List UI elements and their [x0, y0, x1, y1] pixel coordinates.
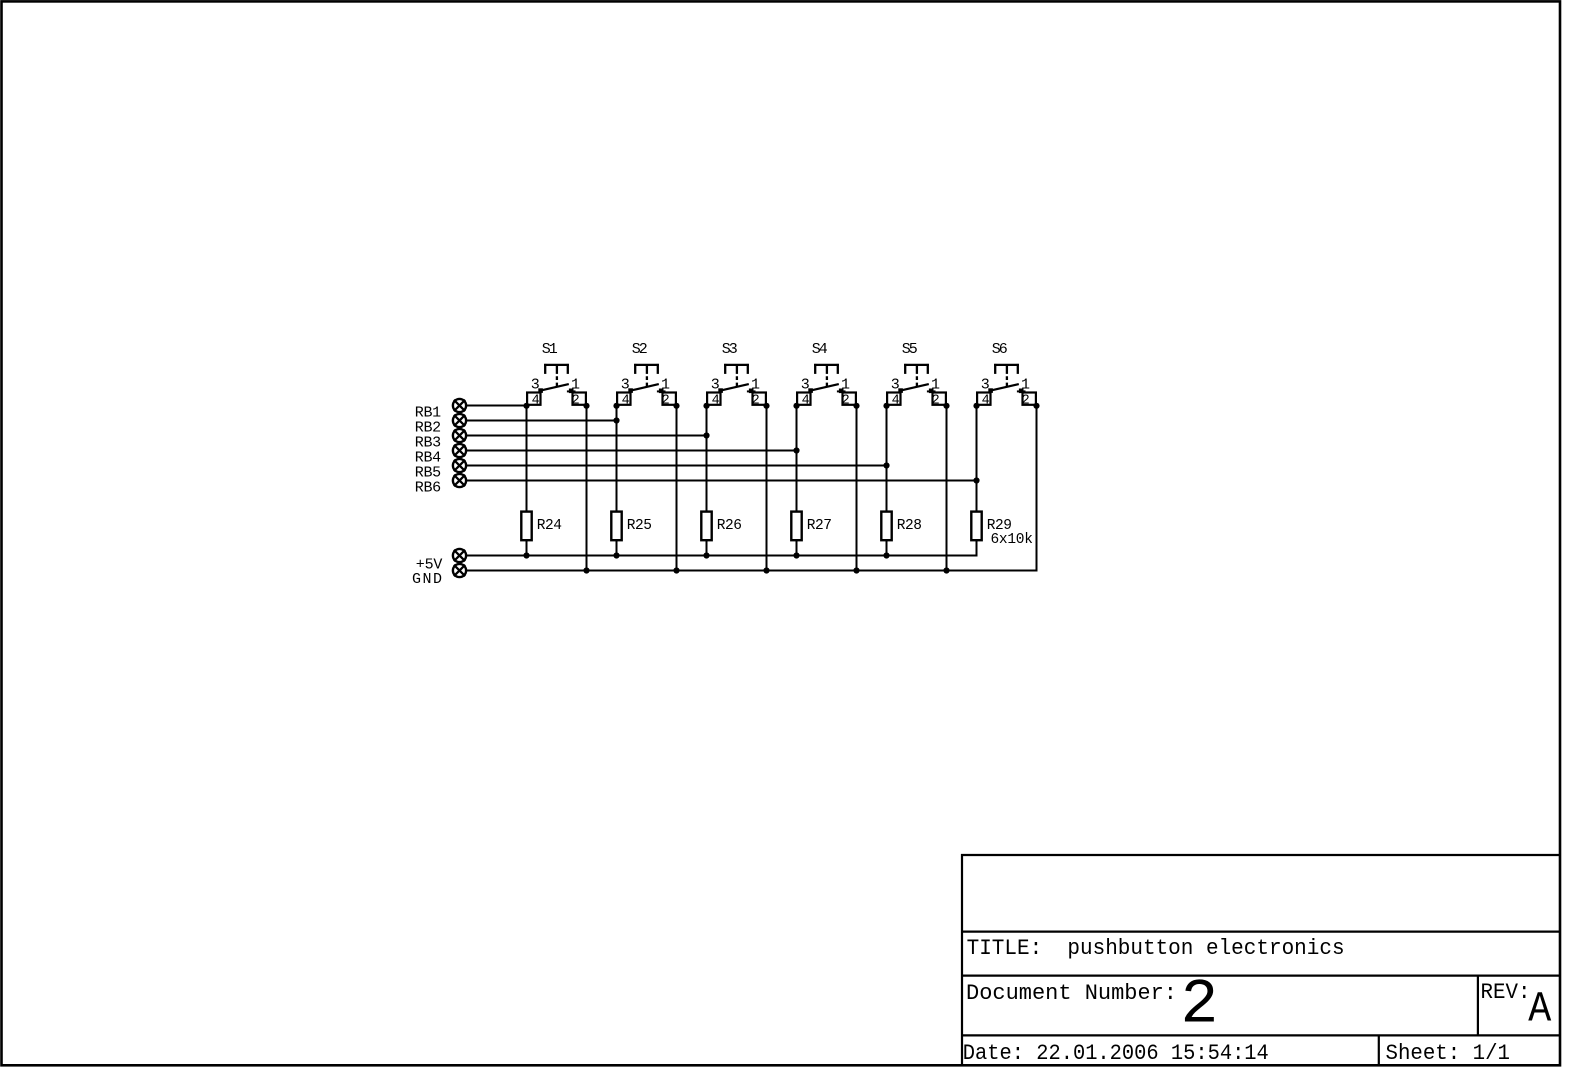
- svg-text:2: 2: [662, 393, 670, 408]
- svg-text:R28: R28: [897, 518, 922, 534]
- svg-text:S5: S5: [902, 341, 918, 358]
- svg-text:S1: S1: [542, 341, 558, 358]
- svg-text:4: 4: [532, 393, 540, 408]
- svg-text:R27: R27: [807, 518, 832, 534]
- svg-text:REV:: REV:: [1481, 980, 1531, 1005]
- svg-text:S4: S4: [812, 341, 828, 358]
- svg-text:R25: R25: [627, 518, 652, 534]
- svg-text:4: 4: [982, 393, 990, 408]
- svg-text:6x10k: 6x10k: [991, 532, 1033, 548]
- svg-text:Date: 22.01.2006 15:54:14: Date: 22.01.2006 15:54:14: [963, 1041, 1269, 1066]
- svg-text:2: 2: [572, 393, 580, 408]
- svg-text:2: 2: [1022, 393, 1030, 408]
- svg-text:2: 2: [752, 393, 760, 408]
- svg-text:4: 4: [712, 393, 720, 408]
- svg-text:S3: S3: [722, 341, 738, 358]
- svg-text:4: 4: [802, 393, 810, 408]
- svg-text:S6: S6: [992, 341, 1008, 358]
- svg-text:TITLE: pushbutton electronics: TITLE: pushbutton electronics: [967, 936, 1345, 961]
- svg-text:GND: GND: [412, 571, 442, 588]
- svg-text:2: 2: [842, 393, 850, 408]
- svg-text:2: 2: [1181, 969, 1219, 1040]
- svg-text:Document Number:: Document Number:: [966, 981, 1177, 1006]
- svg-text:S2: S2: [632, 341, 648, 358]
- svg-text:2: 2: [932, 393, 940, 408]
- svg-text:RB6: RB6: [415, 479, 441, 496]
- svg-text:A: A: [1528, 985, 1551, 1034]
- svg-text:R24: R24: [537, 518, 562, 534]
- svg-text:4: 4: [892, 393, 900, 408]
- svg-text:R26: R26: [717, 518, 742, 534]
- svg-text:Sheet: 1/1: Sheet: 1/1: [1386, 1041, 1511, 1066]
- svg-text:4: 4: [622, 393, 630, 408]
